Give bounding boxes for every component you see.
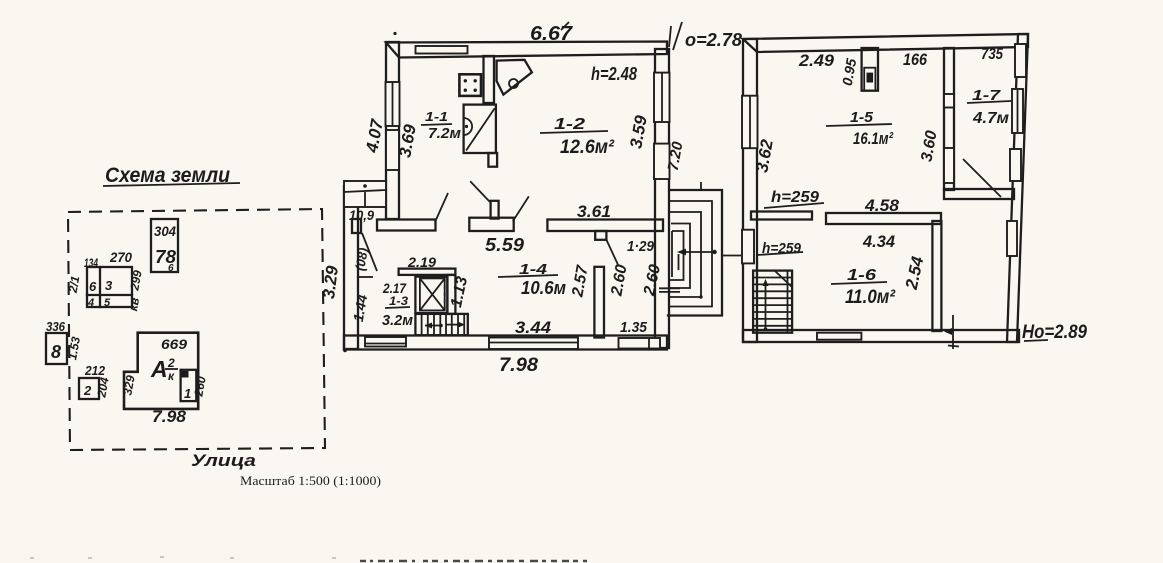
svg-text:669: 669 [161, 336, 187, 352]
svg-text:1-2: 1-2 [554, 116, 585, 133]
svg-text:4: 4 [87, 297, 94, 309]
svg-text:1.35: 1.35 [620, 319, 648, 336]
svg-text:6: 6 [89, 279, 97, 294]
svg-text:2: 2 [167, 356, 175, 370]
svg-text:1-5: 1-5 [850, 109, 874, 126]
svg-text:3: 3 [105, 278, 113, 293]
svg-text:5: 5 [104, 297, 111, 309]
svg-text:10.6м: 10.6м [521, 278, 566, 298]
svg-text:6: 6 [168, 263, 174, 274]
svg-text:3.61: 3.61 [577, 202, 611, 221]
svg-text:А: А [150, 356, 168, 382]
svg-text:2.49: 2.49 [798, 51, 835, 70]
svg-text:1-3: 1-3 [389, 294, 408, 308]
svg-text:4.34: 4.34 [862, 232, 895, 251]
svg-text:7.98: 7.98 [499, 355, 538, 376]
svg-text:270: 270 [109, 249, 132, 265]
svg-text:7.98: 7.98 [152, 407, 187, 426]
svg-text:Масштаб 1:500 (1:1000): Масштаб 1:500 (1:1000) [240, 473, 381, 488]
svg-text:4.7м: 4.7м [972, 110, 1009, 127]
svg-text:735: 735 [981, 46, 1004, 63]
svg-text:6.67: 6.67 [530, 23, 573, 45]
svg-text:кв: кв [126, 297, 142, 313]
svg-text:12.6м²: 12.6м² [560, 137, 615, 158]
svg-text:7.2м: 7.2м [428, 125, 461, 142]
svg-text:304: 304 [154, 223, 176, 239]
svg-text:о=2.78: о=2.78 [685, 30, 742, 50]
svg-text:1-1: 1-1 [425, 109, 448, 124]
svg-text:Улица: Улица [191, 451, 256, 470]
svg-text:5.59: 5.59 [485, 235, 524, 255]
svg-text:3.29: 3.29 [319, 264, 342, 300]
svg-text:11.0м²: 11.0м² [845, 287, 896, 308]
svg-text:2.19: 2.19 [407, 254, 436, 270]
svg-text:3.44: 3.44 [515, 318, 552, 337]
svg-text:к: к [168, 369, 175, 383]
svg-text:8: 8 [51, 342, 61, 362]
svg-text:1: 1 [184, 386, 191, 401]
svg-text:3.2м: 3.2м [382, 312, 413, 329]
svg-text:212: 212 [84, 363, 106, 378]
svg-text:166: 166 [903, 50, 927, 69]
svg-text:336: 336 [46, 319, 66, 334]
svg-text:h=2.48: h=2.48 [591, 64, 637, 84]
svg-text:4.58: 4.58 [864, 196, 900, 215]
svg-text:1-6: 1-6 [847, 267, 876, 284]
svg-text:2: 2 [83, 383, 92, 398]
svg-text:1·29: 1·29 [627, 238, 655, 255]
svg-text:16.1м²: 16.1м² [853, 129, 894, 148]
